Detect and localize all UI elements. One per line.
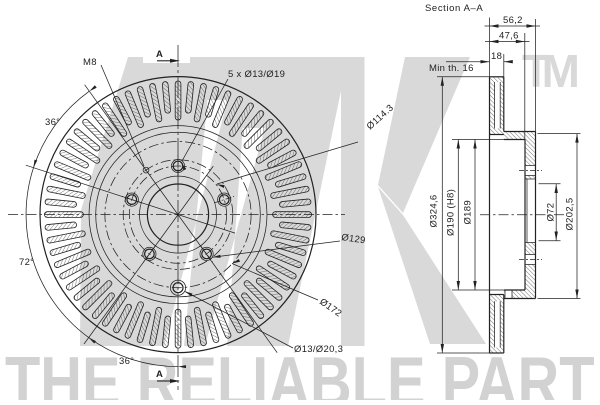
svg-text:Section A–A: Section A–A — [425, 3, 483, 14]
svg-text:72°: 72° — [19, 257, 34, 268]
svg-text:A: A — [156, 369, 163, 380]
svg-text:Min th. 16: Min th. 16 — [429, 63, 474, 74]
svg-text:Ø324,6: Ø324,6 — [428, 195, 439, 228]
svg-text:47,6: 47,6 — [499, 31, 519, 42]
svg-text:36°: 36° — [119, 356, 134, 367]
svg-text:36°: 36° — [45, 117, 60, 128]
svg-text:M8: M8 — [83, 57, 97, 68]
svg-text:18: 18 — [491, 51, 502, 62]
svg-text:Ø13/Ø20,3: Ø13/Ø20,3 — [294, 344, 343, 355]
svg-text:Ø189: Ø189 — [462, 200, 473, 224]
svg-text:Ø72: Ø72 — [545, 203, 556, 222]
svg-text:Ø190 (H8): Ø190 (H8) — [446, 189, 457, 236]
svg-text:A: A — [156, 49, 163, 60]
svg-text:56,2: 56,2 — [503, 15, 523, 26]
svg-text:5 x Ø13/Ø19: 5 x Ø13/Ø19 — [228, 69, 285, 80]
svg-text:Ø202,5: Ø202,5 — [565, 198, 576, 231]
svg-text:TM: TM — [522, 45, 580, 97]
